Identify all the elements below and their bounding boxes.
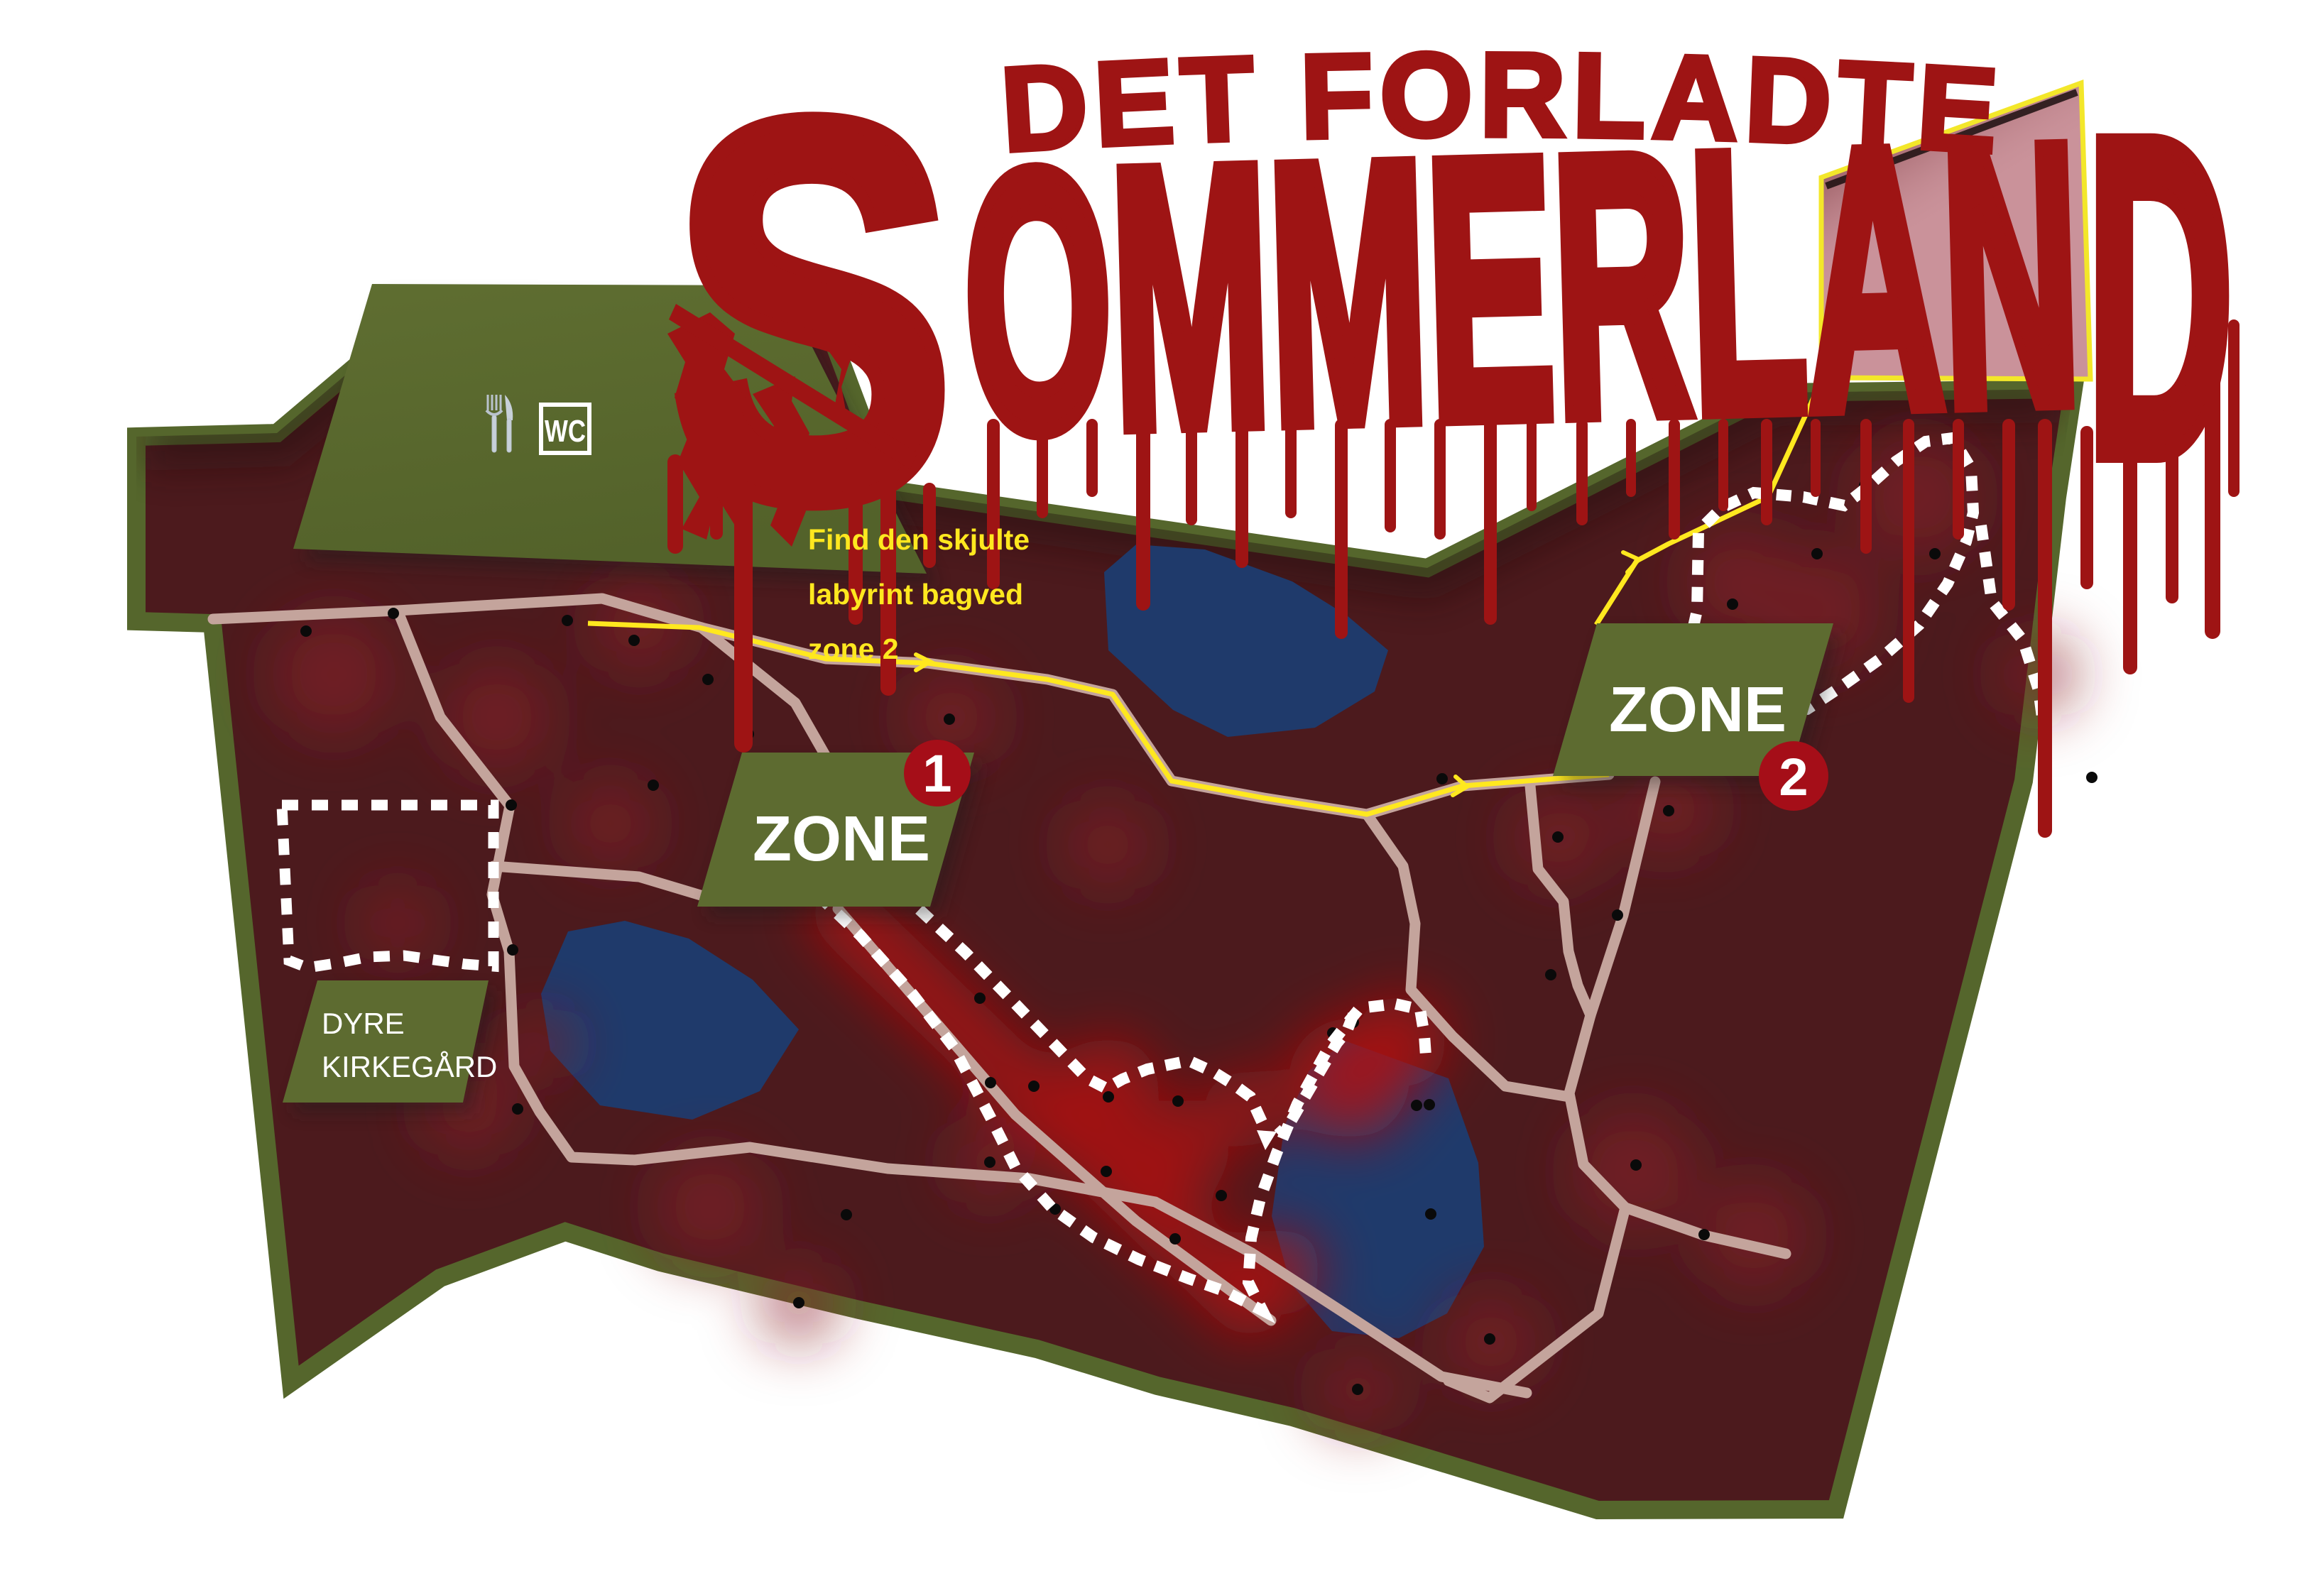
svg-text:zone 2: zone 2 [808,633,899,665]
svg-text:2: 2 [1779,748,1808,806]
svg-text:Find den skjulte: Find den skjulte [808,523,1030,556]
svg-text:ZONE: ZONE [753,804,930,875]
svg-text:labyrint bagved: labyrint bagved [808,578,1023,611]
svg-text:KIRKEGÅRD: KIRKEGÅRD [322,1050,497,1083]
svg-text:WC: WC [545,414,586,449]
svg-text:1: 1 [922,744,951,803]
svg-text:OMMERLAN: OMMERLAN [959,67,2085,508]
svg-text:DYRE: DYRE [322,1007,405,1040]
svg-text:ZONE: ZONE [1609,674,1786,745]
